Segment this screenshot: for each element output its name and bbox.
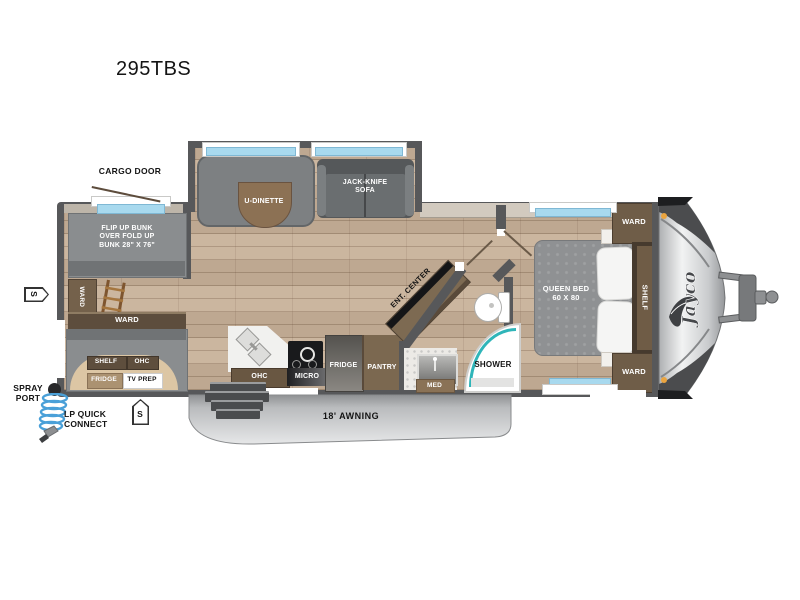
clearance-light-icon <box>661 213 667 219</box>
cargo-door-label: CARGO DOOR <box>94 166 166 176</box>
floorplan-canvas: FLIP UP BUNK OVER FOLD UP BUNK 28" X 76"… <box>0 0 800 600</box>
s-marker-letter: S <box>29 288 39 300</box>
toilet-flush-icon <box>489 303 494 308</box>
microwave-label: MICRO <box>287 373 327 381</box>
bedroom-wall-stub <box>496 205 506 229</box>
shower-ledge <box>471 378 514 387</box>
flip-up-bunk-label: FLIP UP BUNK OVER FOLD UP BUNK 28" X 76" <box>72 225 182 250</box>
window <box>535 208 611 217</box>
tv-prep-label: TV PREP <box>123 376 161 384</box>
front-door-sill <box>590 390 646 398</box>
clearance-light-icon <box>661 377 667 383</box>
lp-quick-connect-label: LP QUICK CONNECT <box>64 409 128 429</box>
toilet-bowl-icon <box>474 293 502 322</box>
window <box>97 204 165 214</box>
window <box>315 147 403 156</box>
window <box>206 147 296 156</box>
queen-bed-label: QUEEN BED 60 X 80 <box>534 285 598 303</box>
bedroom-shelf-label: SHELF <box>640 273 649 321</box>
bunk-ward-lower-label: WARD <box>68 316 186 325</box>
kitchen-ohc-label: OHC <box>231 373 288 381</box>
s-marker-icon: S <box>132 399 149 425</box>
u-dinette-label: U-DINETTE <box>238 198 290 206</box>
pillow <box>596 246 636 300</box>
awning-label: 18' AWNING <box>296 411 406 422</box>
bunk-fridge-label: FRIDGE <box>87 376 121 384</box>
shower-label: SHOWER <box>470 360 516 369</box>
page-title: 295TBS <box>116 58 191 81</box>
flip-up-bunk-edge <box>68 261 185 276</box>
bunk-shelf-label: SHELF <box>87 358 125 366</box>
lower-bunk-edge <box>66 329 186 340</box>
s-marker-letter: S <box>134 409 146 419</box>
entry-steps <box>216 409 260 419</box>
rear-wall-door <box>57 320 65 378</box>
med-cabinet-label: MED <box>416 382 453 390</box>
bunk-ohc-label: OHC <box>127 358 157 366</box>
jayco-logo-text: Jayco <box>679 271 700 328</box>
front-cap: Jayco <box>653 195 793 401</box>
kitchen-fridge-label: FRIDGE <box>325 362 362 370</box>
bath-faucet-stem <box>434 361 436 371</box>
sofa-label: JACK-KNIFE SOFA <box>320 179 410 196</box>
bedroom-ward-top-label: WARD <box>612 218 656 227</box>
s-marker-icon: S <box>24 287 49 302</box>
door-jamb <box>455 262 464 271</box>
trailer-hitch <box>719 272 778 323</box>
pantry <box>362 335 404 390</box>
pillow <box>596 300 636 354</box>
pantry-label: PANTRY <box>362 364 402 372</box>
bedroom-ward-bottom-label: WARD <box>612 368 656 377</box>
